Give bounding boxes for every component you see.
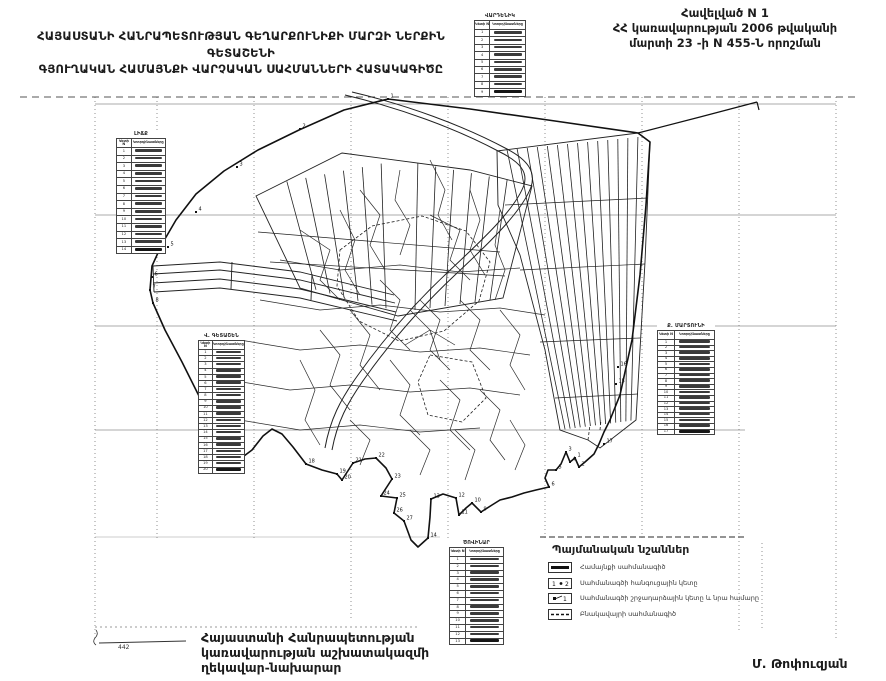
illegible-coordinate-value xyxy=(679,351,710,354)
illegible-coordinate-value xyxy=(494,61,522,64)
coordinate-value-cell xyxy=(131,185,165,193)
table-row: 3 xyxy=(475,44,526,51)
illegible-coordinate-value xyxy=(216,431,241,434)
point-number-cell: 7 xyxy=(117,193,132,201)
illegible-coordinate-value xyxy=(135,187,162,190)
point-number-cell: 4 xyxy=(117,170,132,178)
table-row: 7 xyxy=(117,193,166,201)
illegible-coordinate-value xyxy=(679,430,710,433)
boundary-point-number: 4 xyxy=(199,207,202,213)
point-number-cell: 9 xyxy=(117,208,132,216)
coordinate-table-title: Վ. ԳԵՏԱՇԵՆ xyxy=(198,333,245,339)
illegible-coordinate-value xyxy=(135,210,162,213)
table-row: 4 xyxy=(475,52,526,59)
table-column-header: Կետի N xyxy=(199,341,213,350)
illegible-coordinate-value xyxy=(679,419,710,422)
table-row: 17 xyxy=(658,429,715,435)
boundary-point-number: 4 xyxy=(573,457,576,463)
table-column-header: Կետի N xyxy=(450,548,466,557)
coordinate-value-cell xyxy=(466,604,504,611)
coordinate-value-cell xyxy=(466,638,504,645)
coordinate-value-cell xyxy=(675,362,715,368)
illegible-coordinate-value xyxy=(494,39,522,42)
point-number-cell: 5 xyxy=(475,59,490,66)
illegible-coordinate-value xyxy=(216,357,241,360)
illegible-coordinate-value xyxy=(470,578,499,581)
table-row: 10 xyxy=(450,618,504,625)
coordinate-table-lichk: ԼԻՃՔԿետի NԿոորդինատները12345678910111213… xyxy=(116,131,166,254)
table-row: 1 xyxy=(475,30,526,37)
boundary-point-number: 21 xyxy=(356,458,362,464)
illegible-coordinate-value xyxy=(494,46,522,49)
coordinate-table-title: ՎԱՐԴԵՆԻԿ xyxy=(474,13,526,19)
coordinate-value-cell xyxy=(131,201,165,209)
illegible-coordinate-value xyxy=(494,53,522,56)
table-row: 6 xyxy=(117,185,166,193)
legend-item: Համայնքի սահմանագիծ xyxy=(548,562,792,573)
point-number-cell: 13 xyxy=(450,638,466,645)
coordinate-value-cell xyxy=(675,340,715,346)
point-number-cell: 10 xyxy=(450,618,466,625)
coordinate-value-cell xyxy=(131,193,165,201)
boundary-point-number: 18 xyxy=(309,459,315,465)
illegible-coordinate-value xyxy=(216,381,241,384)
boundary-point-number: 11 xyxy=(462,510,468,516)
table-column-header: Կոորդինատները xyxy=(490,21,526,30)
community-boundary xyxy=(150,99,650,547)
illegible-coordinate-value xyxy=(470,571,499,574)
illegible-coordinate-value xyxy=(216,369,241,372)
coordinate-value-cell xyxy=(466,577,504,584)
signatory-line2: կառավարության աշխատակազմի xyxy=(201,646,429,661)
legend-item-label: Սահմանագծի շրջադարձային կետը և նրա համար… xyxy=(580,595,759,602)
illegible-coordinate-value xyxy=(470,605,499,608)
boundary-point-number: 5 xyxy=(171,242,174,248)
illegible-coordinate-value xyxy=(135,180,162,183)
boundary-point-number: 10 xyxy=(475,498,481,504)
boundary-point-number: 20 xyxy=(345,475,351,481)
table-row: 8 xyxy=(117,201,166,209)
illegible-coordinate-value xyxy=(494,83,522,86)
coordinate-value-cell xyxy=(675,395,715,401)
point-number-cell: 4 xyxy=(475,52,490,59)
road-double-line xyxy=(325,92,532,450)
boundary-point-number: 7 xyxy=(153,285,156,291)
boundary-point-number: 15 xyxy=(619,379,625,385)
point-number-cell: 3 xyxy=(117,163,132,171)
illegible-coordinate-value xyxy=(679,346,710,349)
point-number-cell: 4 xyxy=(450,577,466,584)
table-row: 5 xyxy=(475,59,526,66)
settlement-dashed-boundary xyxy=(337,216,490,422)
illegible-coordinate-value xyxy=(679,340,710,343)
scale-label: 442 xyxy=(118,644,129,651)
coordinate-value-cell xyxy=(675,356,715,362)
coordinate-value-cell xyxy=(490,81,526,88)
boundary-point-number: 14 xyxy=(431,533,437,539)
table-row: 1 xyxy=(450,557,504,564)
illegible-coordinate-value xyxy=(216,443,241,446)
coordinate-value-cell xyxy=(675,429,715,435)
coordinate-value-cell xyxy=(466,590,504,597)
community-boundary-line-icon xyxy=(548,562,572,573)
table-row: 5 xyxy=(117,178,166,186)
legend-item-label: Սահմանագծի հանգուցային կետը xyxy=(580,580,698,587)
illegible-coordinate-value xyxy=(679,396,710,399)
table-column-header: Կետի N xyxy=(117,139,132,148)
north-boundary-spur xyxy=(638,102,759,133)
table-row: 9 xyxy=(117,208,166,216)
boundary-point-number: 25 xyxy=(400,493,406,499)
table-row: 9 xyxy=(475,89,526,96)
boundary-point-number: 1 xyxy=(391,94,394,100)
coordinate-value-cell xyxy=(466,570,504,577)
point-number-cell: 8 xyxy=(117,201,132,209)
coordinate-table-vardenik: ՎԱՐԴԵՆԻԿԿետի NԿոորդինատները123456789 xyxy=(474,13,526,97)
coordinate-value-cell xyxy=(490,37,526,44)
government-line: ՀՀ կառավարության 2006 թվականի xyxy=(570,21,880,36)
svg-text:2: 2 xyxy=(565,581,569,588)
coordinate-value-cell xyxy=(131,239,165,247)
map-title-line2: ԳՅՈՒՂԱԿԱՆ ՀԱՄԱՅՆՔԻ ՎԱՐՉԱԿԱՆ ՍԱՀՄԱՆՆԵՐԻ Հ… xyxy=(12,61,470,78)
coordinate-value-cell xyxy=(466,563,504,570)
illegible-coordinate-value xyxy=(679,379,710,382)
boundary-point-number: 6 xyxy=(552,482,555,488)
boundary-turn-point-icon: 1 xyxy=(548,593,572,604)
coordinate-value-cell xyxy=(675,384,715,390)
coordinate-value-cell xyxy=(131,170,165,178)
coordinate-value-cell xyxy=(466,557,504,564)
signatory-title: Հայաստանի Հանրապետության կառավարության ա… xyxy=(201,631,429,675)
scale-mark xyxy=(94,630,186,645)
point-number-cell: 11 xyxy=(450,624,466,631)
illegible-coordinate-value xyxy=(470,639,499,642)
illegible-coordinate-value xyxy=(679,424,710,427)
table-row: 7 xyxy=(450,597,504,604)
table-row: 4 xyxy=(117,170,166,178)
illegible-coordinate-value xyxy=(135,248,162,251)
settlement-boundary-line-icon xyxy=(548,609,572,620)
illegible-coordinate-value xyxy=(216,375,241,378)
coordinate-value-cell xyxy=(675,379,715,385)
appendix-line: Հավելված N 1 xyxy=(570,6,880,21)
table-row: 7 xyxy=(475,74,526,81)
point-number-cell: 1 xyxy=(117,148,132,156)
table-row: 6 xyxy=(450,590,504,597)
illegible-coordinate-value xyxy=(494,90,522,93)
boundary-point-number: 1 xyxy=(578,453,581,459)
signatory-line1: Հայաստանի Հանրապետության xyxy=(201,631,429,646)
svg-text:1: 1 xyxy=(563,596,567,603)
coordinate-value-cell xyxy=(675,390,715,396)
decision-line: մարտի 23 -ի N 455-Ն որոշման xyxy=(570,36,880,51)
coordinate-value-cell xyxy=(131,208,165,216)
coordinate-value-cell xyxy=(466,611,504,618)
illegible-coordinate-value xyxy=(679,402,710,405)
coordinate-value-cell xyxy=(466,584,504,591)
coordinate-value-cell xyxy=(675,412,715,418)
coordinate-value-cell xyxy=(490,44,526,51)
point-number-cell: 2 xyxy=(450,563,466,570)
illegible-coordinate-value xyxy=(135,195,162,198)
legend-item-label: Բնակավայրի սահմանագիծ xyxy=(580,611,676,618)
point-number-cell: 13 xyxy=(117,239,132,247)
table-row: 12 xyxy=(117,231,166,239)
illegible-coordinate-value xyxy=(494,68,522,71)
point-number-cell: 3 xyxy=(450,570,466,577)
illegible-coordinate-value xyxy=(679,391,710,394)
table-row: 8 xyxy=(450,604,504,611)
boundary-point-number: 5 xyxy=(559,465,562,471)
boundary-node-point-icon: 12 xyxy=(548,578,572,589)
boundary-point-number: 2 xyxy=(582,462,585,468)
table-row: 8 xyxy=(475,81,526,88)
illegible-coordinate-value xyxy=(216,456,241,459)
illegible-coordinate-value xyxy=(216,351,241,354)
illegible-coordinate-value xyxy=(216,437,241,440)
illegible-coordinate-value xyxy=(470,585,499,588)
legend: Պայմանական նշաններ Համայնքի սահմանագիծ12… xyxy=(540,543,792,624)
table-row: 13 xyxy=(450,638,504,645)
table-row: 2 xyxy=(475,37,526,44)
illegible-coordinate-value xyxy=(216,363,241,366)
boundary-point-number: 3 xyxy=(240,162,243,168)
coordinate-value-cell xyxy=(675,373,715,379)
point-number-cell: 12 xyxy=(450,631,466,638)
point-number-cell: 7 xyxy=(450,597,466,604)
boundary-point-number: 16 xyxy=(621,362,627,368)
svg-text:1: 1 xyxy=(552,581,556,588)
point-number-cell: 20 xyxy=(199,467,213,473)
boundary-point-number: 8 xyxy=(156,298,159,304)
illegible-coordinate-value xyxy=(470,626,499,629)
illegible-coordinate-value xyxy=(470,558,499,561)
illegible-coordinate-value xyxy=(216,419,241,422)
coordinate-value-cell xyxy=(490,89,526,96)
boundary-point-number: 17 xyxy=(607,439,613,445)
boundary-point-number: 23 xyxy=(395,474,401,480)
map-title: ՀԱՅԱՍՏԱՆԻ ՀԱՆՐԱՊԵՏՈՒԹՅԱՆ ԳԵՂԱՐՔՈՒՆԻՔԻ ՄԱ… xyxy=(12,28,470,78)
coordinate-value-cell xyxy=(131,155,165,163)
coordinate-value-cell xyxy=(131,223,165,231)
illegible-coordinate-value xyxy=(470,633,499,636)
illegible-coordinate-value xyxy=(216,468,241,471)
table-row: 13 xyxy=(117,239,166,247)
legend-item: 12Սահմանագծի հանգուցային կետը xyxy=(548,578,792,589)
coordinate-table-title: ԾՈՎԻՆԱՐ xyxy=(449,540,504,546)
map-title-line1: ՀԱՅԱՍՏԱՆԻ ՀԱՆՐԱՊԵՏՈՒԹՅԱՆ ԳԵՂԱՐՔՈՒՆԻՔԻ ՄԱ… xyxy=(12,28,470,61)
point-number-cell: 2 xyxy=(475,37,490,44)
point-number-cell: 12 xyxy=(117,231,132,239)
coordinate-value-cell xyxy=(466,618,504,625)
table-column-header: Կետի N xyxy=(658,331,675,340)
coordinate-value-cell xyxy=(675,401,715,407)
illegible-coordinate-value xyxy=(470,565,499,568)
point-number-cell: 5 xyxy=(117,178,132,186)
illegible-coordinate-value xyxy=(135,172,162,175)
table-row: 2 xyxy=(450,563,504,570)
coordinate-table-title: ԼԻՃՔ xyxy=(116,131,166,137)
illegible-coordinate-value xyxy=(135,218,162,221)
coordinate-value-cell xyxy=(466,624,504,631)
decree-reference: Հավելված N 1 ՀՀ կառավարության 2006 թվակա… xyxy=(570,6,880,51)
table-column-header: Կոորդինատները xyxy=(466,548,504,557)
coordinate-value-cell xyxy=(675,351,715,357)
point-number-cell: 9 xyxy=(450,611,466,618)
illegible-coordinate-value xyxy=(216,394,241,397)
illegible-coordinate-value xyxy=(135,240,162,243)
east-parcel-block xyxy=(497,133,650,448)
illegible-coordinate-value xyxy=(135,225,162,228)
coordinate-value-cell xyxy=(131,148,165,156)
coordinate-table-title: Ք. ՄԱՐՏՈՒՆԻ xyxy=(657,323,715,329)
point-number-cell: 14 xyxy=(117,246,132,254)
table-row: 2 xyxy=(117,155,166,163)
illegible-coordinate-value xyxy=(470,619,499,622)
point-number-cell: 6 xyxy=(475,66,490,73)
point-number-cell: 1 xyxy=(450,557,466,564)
illegible-coordinate-value xyxy=(679,363,710,366)
illegible-coordinate-value xyxy=(679,385,710,388)
table-column-header: Կոորդինատները xyxy=(675,331,715,340)
point-number-cell: 9 xyxy=(475,89,490,96)
point-number-cell: 8 xyxy=(450,604,466,611)
coordinate-value-cell xyxy=(131,178,165,186)
boundary-point-number: 9 xyxy=(484,507,487,513)
coordinate-table-martuni: Ք. ՄԱՐՏՈՒՆԻԿետի NԿոորդինատները1234567891… xyxy=(657,323,715,435)
legend-item: Բնակավայրի սահմանագիծ xyxy=(548,609,792,620)
illegible-coordinate-value xyxy=(135,164,162,167)
west-strip-band xyxy=(153,262,397,321)
table-row: 6 xyxy=(475,66,526,73)
illegible-coordinate-value xyxy=(679,413,710,416)
point-number-cell: 17 xyxy=(658,429,675,435)
legend-item: 1Սահմանագծի շրջադարձային կետը և նրա համա… xyxy=(548,593,792,604)
coordinate-value-cell xyxy=(131,246,165,254)
legend-title: Պայմանական նշաններ xyxy=(552,543,792,556)
coordinate-value-cell xyxy=(675,407,715,413)
illegible-coordinate-value xyxy=(216,462,241,465)
illegible-coordinate-value xyxy=(216,450,241,453)
boundary-point-number: 27 xyxy=(407,516,413,522)
coordinate-value-cell xyxy=(490,52,526,59)
table-row: 14 xyxy=(117,246,166,254)
point-number-cell: 1 xyxy=(475,30,490,37)
table-row: 5 xyxy=(450,584,504,591)
table-row: 4 xyxy=(450,577,504,584)
illegible-coordinate-value xyxy=(470,599,499,602)
table-row: 12 xyxy=(450,631,504,638)
illegible-coordinate-value xyxy=(216,412,241,415)
table-row: 11 xyxy=(450,624,504,631)
signature-name: Մ. Թոփուզյան xyxy=(752,656,848,671)
table-row: 20 xyxy=(199,467,245,473)
point-number-cell: 11 xyxy=(117,223,132,231)
illegible-coordinate-value xyxy=(679,368,710,371)
point-number-cell: 5 xyxy=(450,584,466,591)
boundary-point-number: 12 xyxy=(459,493,465,499)
illegible-coordinate-value xyxy=(679,407,710,410)
northwest-parcel-block xyxy=(256,153,532,316)
illegible-coordinate-value xyxy=(216,388,241,391)
scanned-map-document: { "header": { "line1": "Հավելված N 1", "… xyxy=(0,0,886,681)
point-number-cell: 10 xyxy=(117,216,132,224)
boundary-point-number: 24 xyxy=(384,491,390,497)
point-number-cell: 8 xyxy=(475,81,490,88)
table-row: 9 xyxy=(450,611,504,618)
illegible-coordinate-value xyxy=(470,612,499,615)
coordinate-value-cell xyxy=(490,74,526,81)
coordinate-value-cell xyxy=(131,216,165,224)
coordinate-table-tsovinar: ԾՈՎԻՆԱՐԿետի NԿոորդինատները12345678910111… xyxy=(449,540,504,645)
illegible-coordinate-value xyxy=(216,400,241,403)
table-row: 3 xyxy=(450,570,504,577)
coordinate-value-cell xyxy=(466,597,504,604)
legend-item-label: Համայնքի սահմանագիծ xyxy=(580,564,666,571)
coordinate-table-v-getashen: Վ. ԳԵՏԱՇԵՆԿետի NԿոորդինատները12345678910… xyxy=(198,333,245,474)
boundary-point-number: 6 xyxy=(155,272,158,278)
illegible-coordinate-value xyxy=(679,374,710,377)
signatory-line3: ղեկավար-նախարար xyxy=(201,661,429,676)
illegible-coordinate-value xyxy=(494,31,522,34)
illegible-coordinate-value xyxy=(135,233,162,236)
point-number-cell: 6 xyxy=(117,185,132,193)
point-number-cell: 3 xyxy=(475,44,490,51)
boundary-point-number: 22 xyxy=(379,453,385,459)
table-row: 3 xyxy=(117,163,166,171)
illegible-coordinate-value xyxy=(470,592,499,595)
table-column-header: Կոորդինատները xyxy=(212,341,244,350)
boundary-point-number: 2 xyxy=(303,124,306,130)
coordinate-value-cell xyxy=(675,345,715,351)
coordinate-value-cell xyxy=(212,467,244,473)
table-column-header: Կետի N xyxy=(475,21,490,30)
point-number-cell: 6 xyxy=(450,590,466,597)
coordinate-value-cell xyxy=(675,367,715,373)
illegible-coordinate-value xyxy=(135,202,162,205)
table-column-header: Կոորդինատները xyxy=(131,139,165,148)
table-row: 1 xyxy=(117,148,166,156)
illegible-coordinate-value xyxy=(494,75,522,78)
coordinate-value-cell xyxy=(490,66,526,73)
coordinate-value-cell xyxy=(466,631,504,638)
boundary-point-number: 13 xyxy=(434,494,440,500)
illegible-coordinate-value xyxy=(679,357,710,360)
boundary-point-number: 3 xyxy=(569,447,572,453)
table-row: 11 xyxy=(117,223,166,231)
point-number-cell: 7 xyxy=(475,74,490,81)
coordinate-value-cell xyxy=(490,59,526,66)
table-row: 10 xyxy=(117,216,166,224)
point-number-cell: 2 xyxy=(117,155,132,163)
coordinate-value-cell xyxy=(131,163,165,171)
illegible-coordinate-value xyxy=(135,149,162,152)
coordinate-value-cell xyxy=(490,30,526,37)
illegible-coordinate-value xyxy=(216,406,241,409)
coordinate-value-cell xyxy=(675,418,715,424)
coordinate-value-cell xyxy=(131,231,165,239)
coordinate-value-cell xyxy=(675,423,715,429)
illegible-coordinate-value xyxy=(216,425,241,428)
boundary-point-number: 26 xyxy=(397,508,403,514)
illegible-coordinate-value xyxy=(135,157,162,160)
